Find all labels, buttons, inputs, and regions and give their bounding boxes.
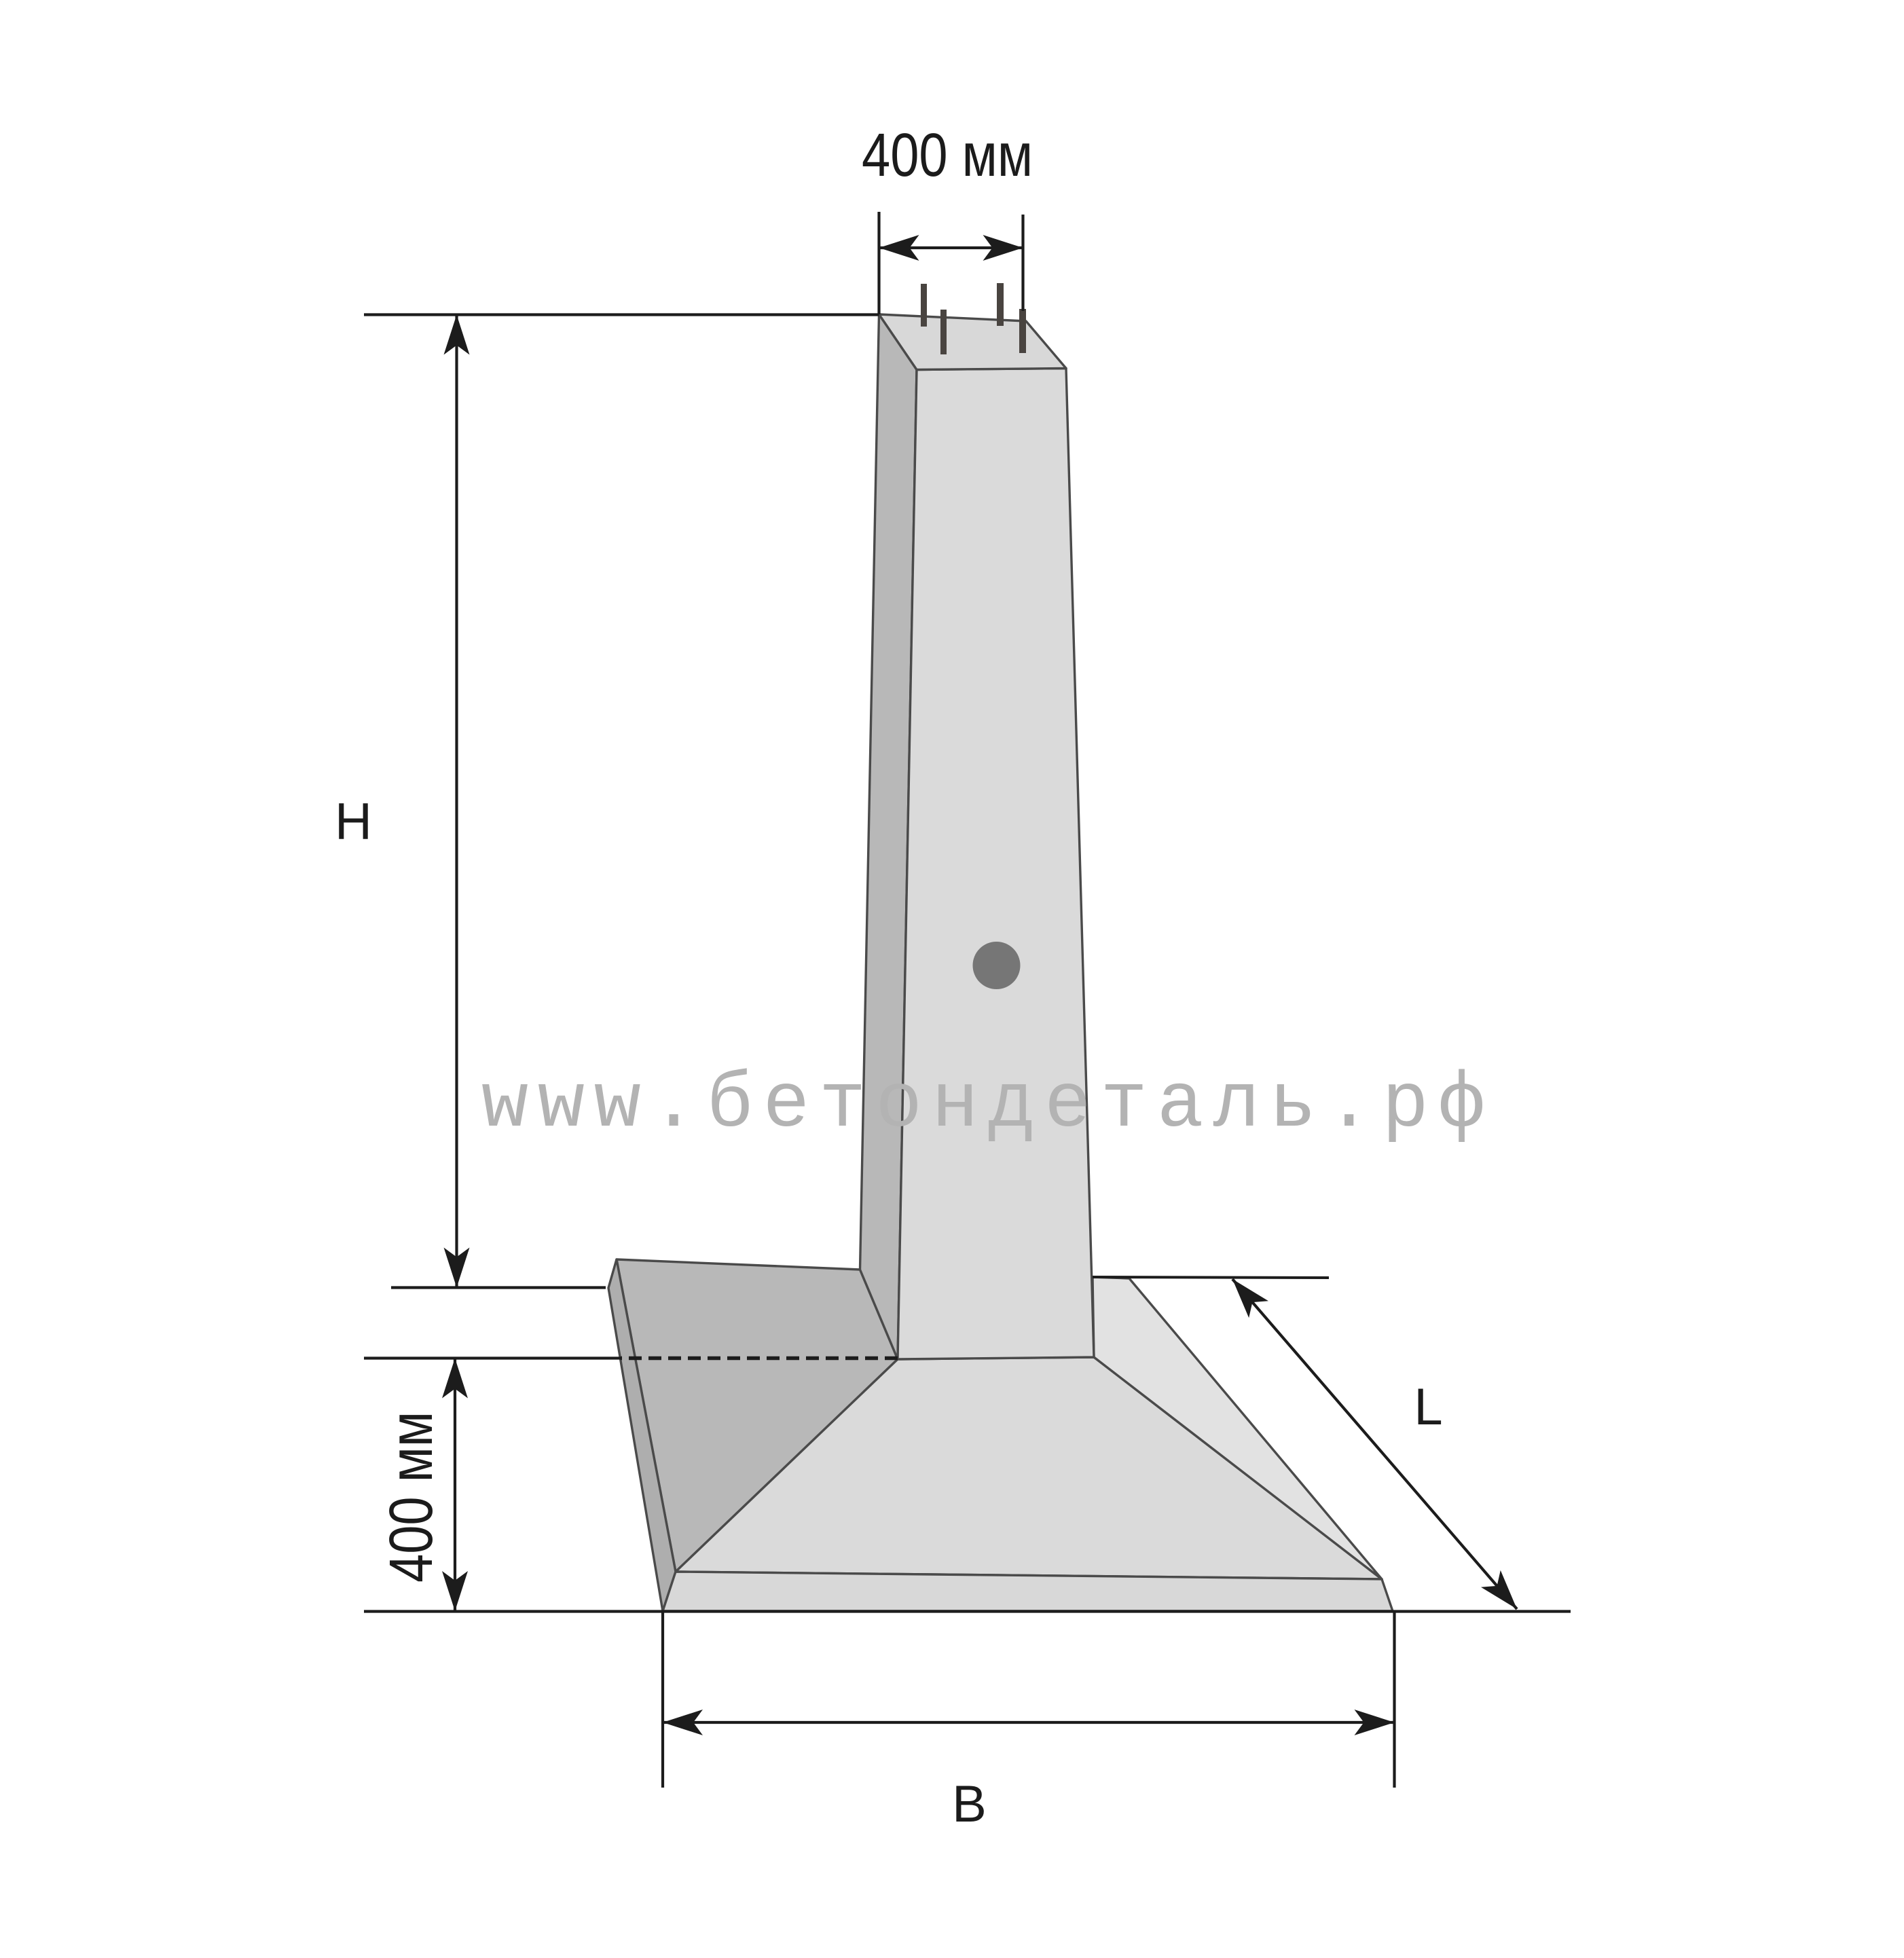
svg-text:B: B: [952, 1775, 987, 1833]
svg-text:400 мм: 400 мм: [378, 1411, 445, 1583]
svg-text:H: H: [335, 793, 372, 851]
svg-text:400 мм: 400 мм: [862, 122, 1033, 189]
svg-text:L: L: [1414, 1378, 1442, 1436]
